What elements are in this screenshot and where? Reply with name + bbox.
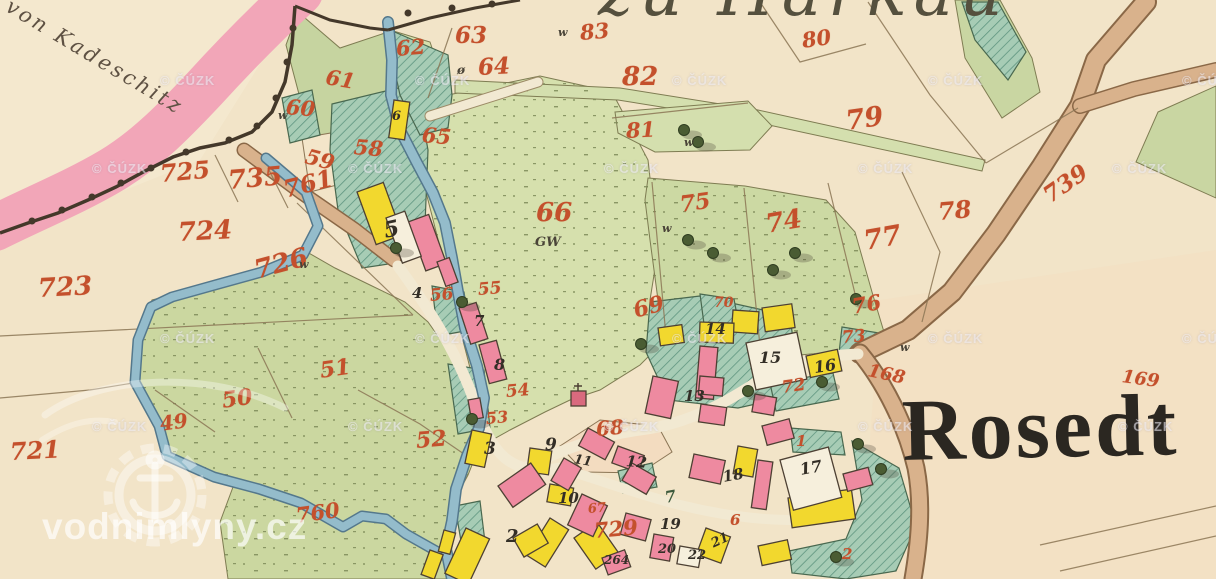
parcel-number: 54 (505, 382, 530, 401)
site-watermark: vodnimlyny.cz (42, 506, 307, 548)
cuzk-watermark: © ČÚZK (1182, 74, 1216, 87)
cuzk-watermark: © ČÚZK (1112, 162, 1167, 175)
building-number: 4 (412, 286, 422, 301)
parcel-number: 169 (1121, 368, 1161, 391)
parcel-number: 729 (593, 516, 639, 541)
map-symbol: GW (535, 236, 561, 249)
cuzk-watermark: © ČÚZK (604, 420, 659, 433)
cuzk-watermark: © ČÚZK (928, 74, 983, 87)
building-number: 22 (688, 549, 706, 562)
building-number: 18 (722, 466, 745, 484)
parcel-number: 61 (324, 66, 356, 92)
building-number: 2 (506, 528, 519, 546)
map-symbol: w (684, 137, 693, 148)
building-number: 17 (799, 458, 824, 478)
parcel-number: 56 (429, 286, 454, 305)
parcel-number: 1 (796, 434, 806, 449)
cuzk-watermark: © ČÚZK (160, 332, 215, 345)
parcel-number: 81 (625, 118, 655, 141)
parcel-number: 76 (850, 291, 882, 317)
parcel-number: 735 (227, 163, 283, 194)
parcel-number: 74 (764, 206, 804, 238)
map-symbol: w (278, 110, 287, 121)
map-symbol: w (558, 27, 567, 38)
adjacent-area-title: zu Harkau (598, 0, 1010, 31)
cuzk-watermark: © ČÚZK (348, 420, 403, 433)
cuzk-watermark: © ČÚZK (672, 332, 727, 345)
cuzk-watermark: © ČÚZK (928, 332, 983, 345)
cuzk-watermark: © ČÚZK (858, 162, 913, 175)
cuzk-watermark: © ČÚZK (92, 162, 147, 175)
building-number: 12 (625, 454, 647, 471)
parcel-number: 6 (730, 513, 740, 528)
building-number: 13 (684, 389, 705, 404)
building-number: 3 (484, 441, 496, 458)
parcel-number: 80 (801, 26, 833, 51)
parcel-number: 70 (714, 296, 733, 310)
parcel-number: 78 (937, 197, 972, 224)
parcel-number: 59 (303, 145, 337, 173)
building-number: 19 (660, 517, 681, 532)
parcel-number: 53 (485, 409, 509, 427)
cuzk-watermark: © ČÚZK (604, 162, 659, 175)
parcel-number: 62 (395, 35, 426, 58)
building-number: 6 (392, 110, 401, 123)
parcel-number: 79 (844, 103, 885, 135)
parcel-number: 82 (622, 64, 658, 90)
parcel-number: 723 (37, 273, 93, 302)
building-number: 7 (474, 314, 484, 329)
map-symbol: w (299, 259, 308, 270)
parcel-number: 725 (159, 158, 211, 186)
parcel-number: 75 (678, 190, 711, 216)
parcel-number: 64 (477, 54, 510, 79)
parcel-number: 60 (285, 96, 316, 119)
parcel-number: 2 (842, 547, 852, 562)
parcel-number: 66 (536, 200, 572, 226)
building-number: 15 (759, 350, 781, 366)
cuzk-watermark: © ČÚZK (415, 332, 470, 345)
parcel-number: 65 (421, 124, 452, 147)
building-number: 11 (573, 453, 593, 469)
building-number: 16 (813, 357, 837, 376)
parcel-number: 55 (477, 280, 502, 299)
cuzk-watermark: © ČÚZK (160, 74, 215, 87)
building-number: 20 (658, 543, 676, 556)
cuzk-watermark: © ČÚZK (415, 74, 470, 87)
parcel-number: 83 (579, 19, 610, 42)
cuzk-watermark: © ČÚZK (858, 420, 913, 433)
map-canvas[interactable]: von Kadeschitz zu Harkau Rosedt 72573576… (0, 0, 1216, 579)
parcel-number: 77 (862, 222, 904, 255)
parcel-number: 724 (177, 217, 233, 246)
building-number: 8 (494, 357, 505, 373)
parcel-number: 67 (587, 501, 606, 516)
parcel-number: 52 (415, 427, 447, 452)
parcel-number: 63 (455, 24, 487, 47)
map-symbol: w (662, 223, 671, 234)
parcel-number: 72 (781, 377, 807, 397)
parcel-number: 73 (841, 328, 866, 347)
parcel-number: 58 (353, 136, 384, 159)
cuzk-watermark: © ČÚZK (1182, 332, 1216, 345)
building-number: 9 (545, 437, 557, 454)
cuzk-watermark: © ČÚZK (1118, 420, 1173, 433)
cuzk-watermark: © ČÚZK (672, 74, 727, 87)
building-number: 10 (558, 491, 579, 506)
building-number: 264 (604, 554, 629, 566)
cuzk-watermark: © ČÚZK (348, 162, 403, 175)
map-symbol: w (900, 342, 909, 353)
